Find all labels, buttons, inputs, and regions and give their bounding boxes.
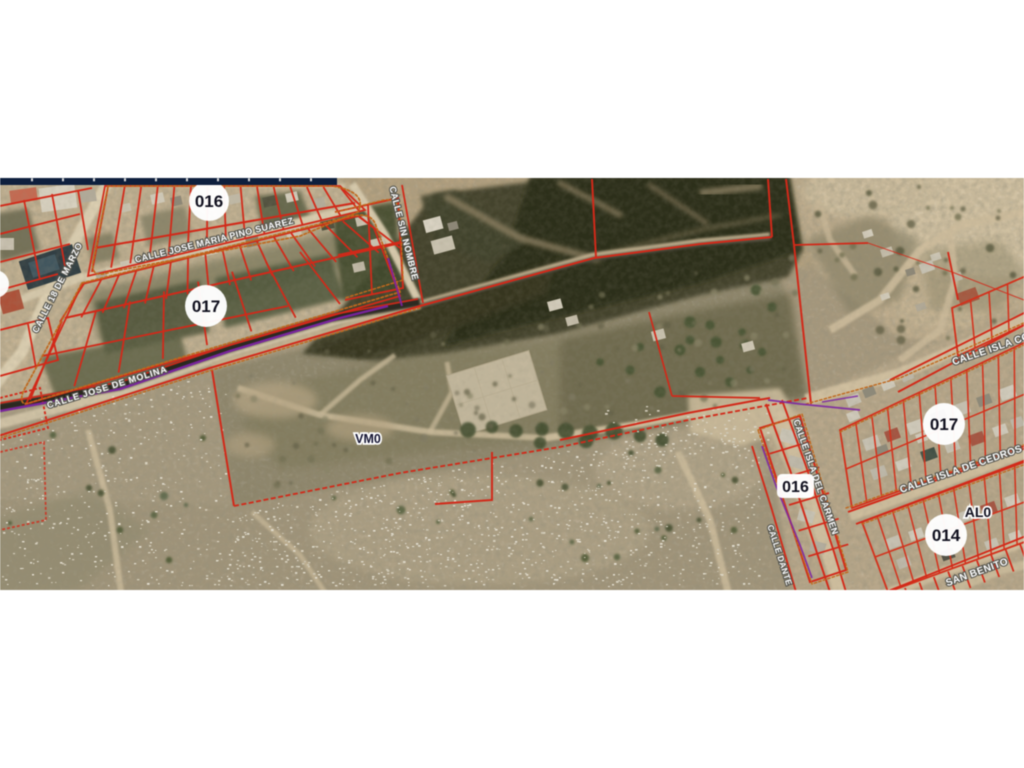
svg-text:VM0: VM0 [355,432,381,446]
svg-text:016: 016 [782,479,809,496]
svg-text:AL0: AL0 [965,504,992,520]
svg-text:016: 016 [195,192,223,211]
svg-text:017: 017 [930,415,958,434]
svg-text:017: 017 [192,297,220,316]
svg-text:014: 014 [932,526,961,545]
